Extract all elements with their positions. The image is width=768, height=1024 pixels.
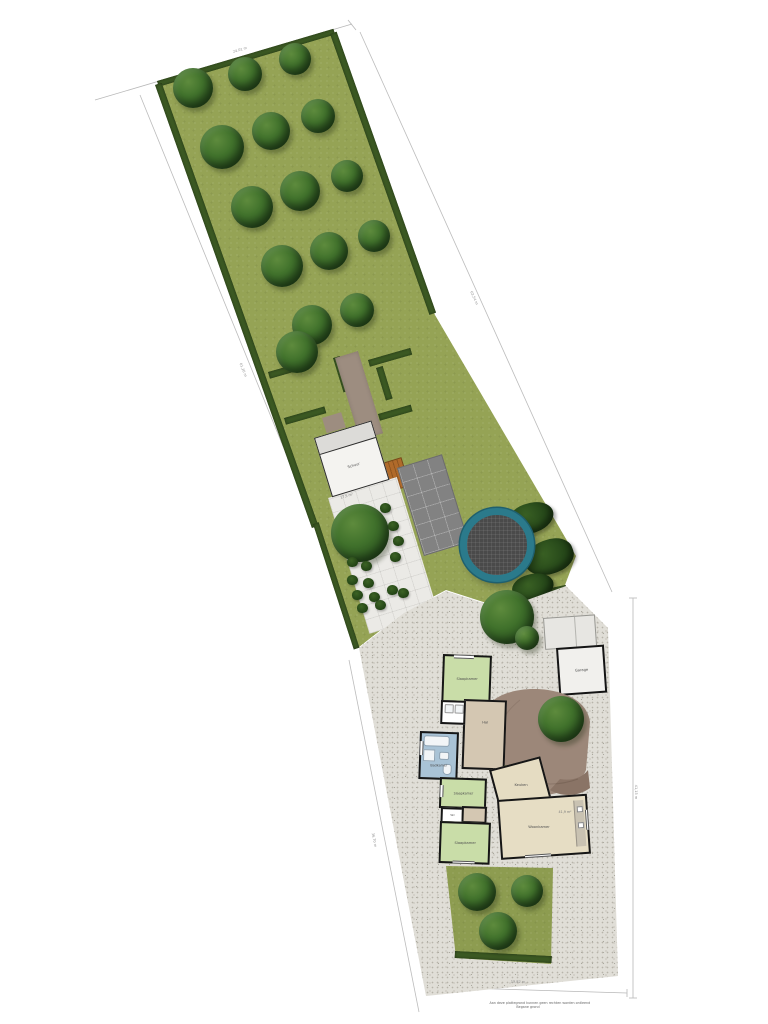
dryer-icon xyxy=(455,704,464,713)
sink-icon xyxy=(439,752,449,760)
room-hall: Hal xyxy=(462,699,507,770)
yard-tree-small xyxy=(515,626,539,650)
terrace xyxy=(0,0,768,1024)
room-label: Slaapkamer xyxy=(453,791,473,795)
room-label: Keuken xyxy=(514,783,527,787)
kitchen-counter xyxy=(573,800,586,847)
room-label: Woonkamer xyxy=(528,825,549,829)
room-utility xyxy=(440,700,466,725)
dimension-label-right-lower: 41,15 m xyxy=(634,785,638,799)
room-area-label: 41,9 m² xyxy=(559,810,572,814)
room-bathroom: Badkamer xyxy=(418,731,459,780)
window xyxy=(439,785,443,797)
room-living: Woonkamer 41,9 m² xyxy=(497,794,591,860)
window xyxy=(454,654,474,658)
terrace-tree xyxy=(538,696,584,742)
sink-icon xyxy=(576,806,582,812)
room-label: Slaapkamer xyxy=(454,841,475,845)
room-label: Slaapkamer xyxy=(456,677,477,681)
plan-caption: Aan deze plattegrond kunnen geen rechten… xyxy=(490,1001,567,1010)
caption-line-2: Begane grond xyxy=(490,1005,567,1009)
shower-icon xyxy=(423,749,435,761)
room-label: Wc xyxy=(450,814,455,818)
site-plan: Schuur 17,5 m² Garage xyxy=(0,0,768,1024)
washer-icon xyxy=(445,704,454,713)
window xyxy=(453,860,475,864)
room-label: Hal xyxy=(482,721,488,725)
room-bedroom-1: Slaapkamer xyxy=(441,654,492,704)
stove-icon xyxy=(577,822,583,828)
bathtub-icon xyxy=(423,735,449,747)
room-label: Badkamer xyxy=(430,763,447,767)
dimension-label-bottom: 19,82 m xyxy=(511,980,526,985)
room-bedroom-3: Slaapkamer xyxy=(439,821,491,865)
room-bedroom-2: Slaapkamer xyxy=(439,777,487,810)
